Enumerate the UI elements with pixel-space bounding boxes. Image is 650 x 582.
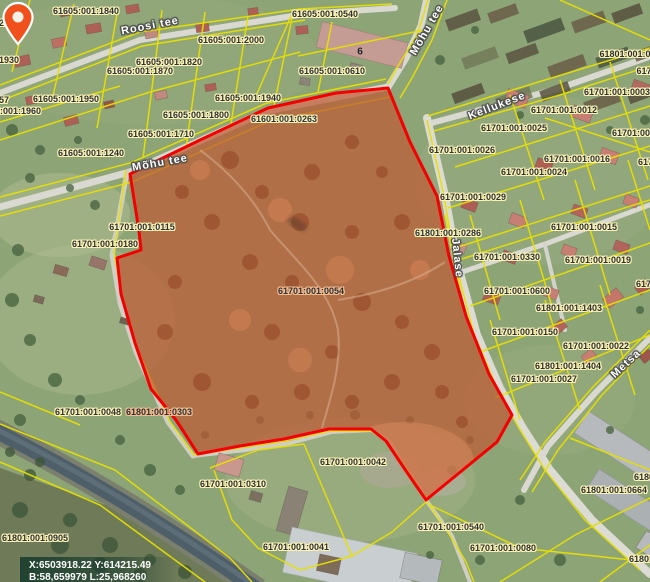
parcel-label: 61701:001:0012: [531, 105, 597, 115]
parcel-label: 61701:001:0048: [55, 407, 121, 417]
parcel-label: 61801:: [629, 554, 650, 564]
parcel-label: 61605:001:1960: [0, 106, 41, 116]
parcel-label: 61801:001:0303: [126, 407, 192, 417]
parcel-label: 61701:001:0041: [263, 542, 329, 552]
location-pin[interactable]: [0, 0, 36, 48]
parcel-label: 61701:001:0022: [563, 341, 629, 351]
parcel-label: 61605:001:0540: [292, 9, 358, 19]
coordinates-readout: X:6503918.22 Y:614215.49 B:58,659979 L:2…: [20, 557, 177, 582]
parcel-label: 61701:001:0019: [565, 255, 631, 265]
parcel-label: 61701:001:0003: [584, 87, 650, 97]
parcel-label: 61701:001:0025: [481, 123, 547, 133]
parcel-label: 6170: [638, 157, 650, 167]
parcel-label: 6180: [634, 472, 650, 482]
parcel-label: 61701:001:0080: [470, 543, 536, 553]
parcel-label: 61701:001:0015: [551, 222, 617, 232]
parcel-label: 61605:001:1940: [215, 93, 281, 103]
parcel-label: 61801:001:1404: [535, 361, 601, 371]
parcel-label: 61701:001:0027: [511, 374, 577, 384]
parcel-label: 61701:001:0540: [418, 522, 484, 532]
parcel-label: 61701:001:0026: [429, 145, 495, 155]
parcel-label: 61605:001:1930: [0, 55, 19, 65]
parcel-label: 61605:001:0610: [299, 66, 365, 76]
parcel-label: 61605:001:1870: [107, 66, 173, 76]
coordinates-bl: B:58,659979 L:25,968260: [29, 572, 151, 582]
parcel-label: 61701:001:0310: [200, 479, 266, 489]
parcel-label: 61701:001:0330: [474, 252, 540, 262]
parcel-label: 61701:001:0024: [501, 167, 567, 177]
parcel-label: 61801:001:0286: [415, 228, 481, 238]
parcel-label: 61605:001:1800: [163, 110, 229, 120]
parcel-label: 61701:001:0029: [440, 192, 506, 202]
parcel-label: 61605:001:1240: [58, 148, 124, 158]
parcel-label: 61605:001:2000: [198, 35, 264, 45]
parcel-label: 57: [0, 95, 9, 105]
coordinates-xy: X:6503918.22 Y:614215.49: [29, 560, 151, 572]
parcel-label: 61701:001:0042: [320, 457, 386, 467]
parcel-label: 61701:001:00: [612, 128, 650, 138]
parcel-label: 6170: [636, 279, 650, 289]
parcel-label: 61801:001:0: [599, 49, 650, 59]
parcel-label: 61701:001:0150: [492, 327, 558, 337]
parcel-label: 617: [636, 66, 650, 76]
parcel-label: 61701:001:0016: [544, 154, 610, 164]
parcel-label: 61801:001:0905: [2, 533, 68, 543]
parcel-label: 6: [357, 47, 363, 58]
parcel-label: 61701:001:0054: [278, 286, 344, 296]
parcel-label: 61605:001:1950: [33, 94, 99, 104]
parcel-label: 61605:001:1840: [53, 6, 119, 16]
parcel-label: 61605:001:1710: [128, 129, 194, 139]
parcel-label: 61701:001:0180: [72, 239, 138, 249]
parcel-label: 61801:001:1403: [536, 303, 602, 313]
parcel-label: 61601:001:0263: [251, 114, 317, 124]
parcel-label: 61701:001:0600: [484, 286, 550, 296]
map-canvas[interactable]: 61605:001:184061605:001:054061605:001:20…: [0, 0, 650, 582]
parcel-label: 61701:001:0115: [109, 222, 175, 232]
parcel-label: 61801:001:0664: [581, 485, 647, 495]
